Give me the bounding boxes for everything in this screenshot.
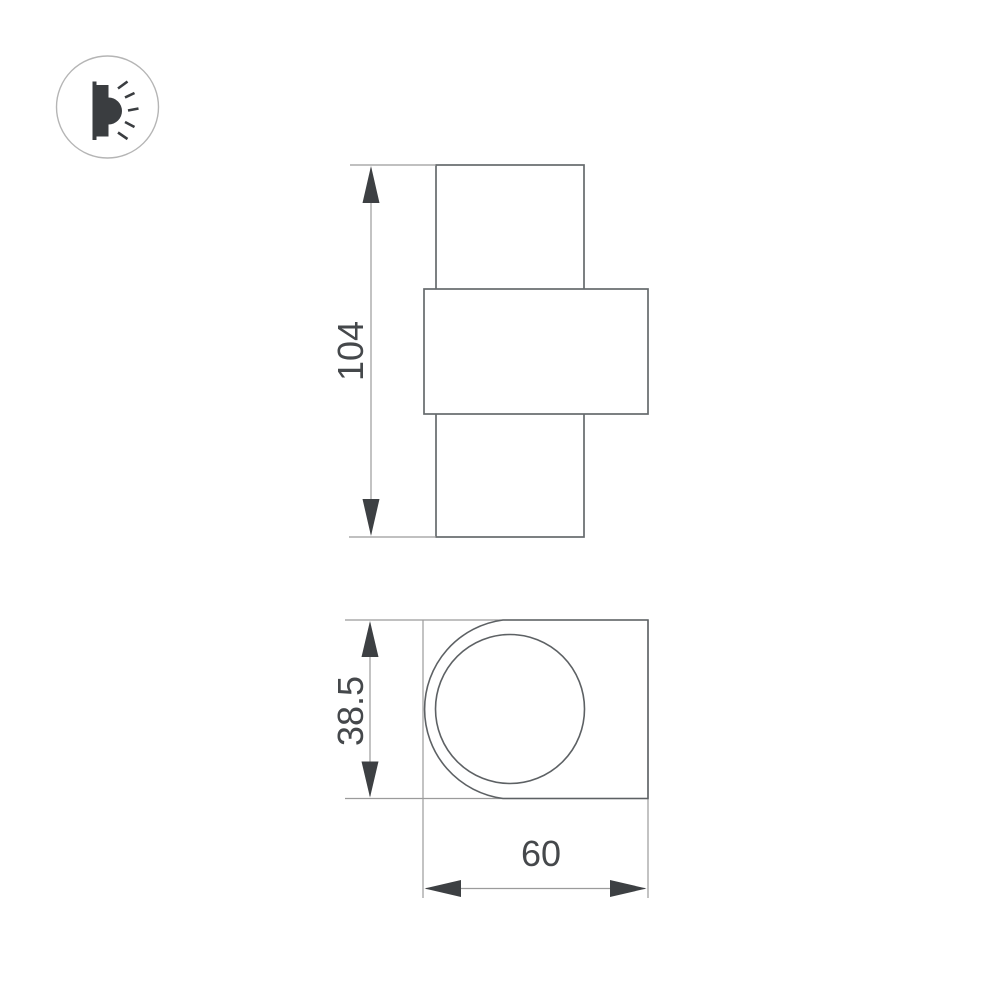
side-width-dimension: 60 xyxy=(425,833,647,897)
arrow-down-icon xyxy=(362,762,379,798)
technical-drawing: 104 38.5 60 xyxy=(0,0,1000,1000)
front-view-center-housing xyxy=(424,289,648,414)
brand-logo xyxy=(57,56,159,158)
depth-dimension-label: 38.5 xyxy=(330,676,371,746)
front-height-dimension: 104 xyxy=(330,165,436,537)
lamp-body xyxy=(97,85,109,137)
arrow-left-icon xyxy=(425,880,462,897)
arrow-up-icon xyxy=(363,166,380,203)
arrow-down-icon xyxy=(363,499,380,536)
side-view xyxy=(345,620,648,898)
wall-mount-bar xyxy=(93,82,97,141)
drawing-page: 104 38.5 60 xyxy=(0,0,1000,1000)
arrow-up-icon xyxy=(362,621,379,657)
side-depth-dimension: 38.5 xyxy=(330,621,379,798)
width-dimension-label: 60 xyxy=(521,833,561,874)
side-view-lens-circle xyxy=(436,635,585,784)
arrow-right-icon xyxy=(610,880,647,897)
height-dimension-label: 104 xyxy=(330,321,371,381)
side-view-profile xyxy=(425,620,648,799)
front-view xyxy=(424,165,648,537)
